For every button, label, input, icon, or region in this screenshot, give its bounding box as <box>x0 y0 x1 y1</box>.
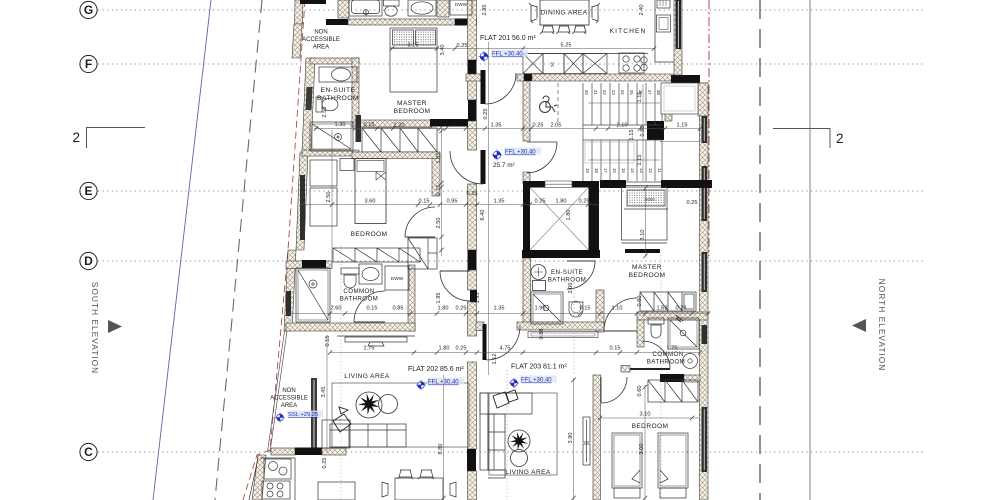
svg-text:MASTER: MASTER <box>397 100 427 107</box>
svg-text:DWW: DWW <box>391 276 404 282</box>
svg-text:3.15: 3.15 <box>408 43 419 49</box>
svg-text:6.80: 6.80 <box>438 444 444 455</box>
svg-text:1.95: 1.95 <box>475 293 481 304</box>
svg-text:1.15: 1.15 <box>637 155 643 166</box>
svg-text:EN-SUITE: EN-SUITE <box>321 87 356 94</box>
svg-text:FFL +30.40: FFL +30.40 <box>521 378 552 384</box>
svg-text:BEDROOM: BEDROOM <box>351 231 388 238</box>
svg-text:0.25: 0.25 <box>535 199 546 205</box>
svg-text:6.40: 6.40 <box>480 210 486 221</box>
svg-text:COMMON: COMMON <box>343 288 374 295</box>
svg-text:AREA: AREA <box>281 403 297 409</box>
svg-text:0.15: 0.15 <box>419 199 430 205</box>
svg-text:2.00: 2.00 <box>568 283 574 294</box>
svg-text:2.40: 2.40 <box>639 5 645 16</box>
svg-text:BATHROOM: BATHROOM <box>548 277 587 284</box>
svg-text:14: 14 <box>630 168 635 173</box>
svg-text:25.7 m²: 25.7 m² <box>493 162 515 169</box>
svg-text:MASTER: MASTER <box>632 264 662 271</box>
svg-text:8000: 8000 <box>645 197 655 202</box>
svg-text:FLAT 203 81.1 m²: FLAT 203 81.1 m² <box>511 364 567 371</box>
svg-text:2.60: 2.60 <box>331 306 342 312</box>
svg-text:1.63: 1.63 <box>657 306 668 312</box>
svg-text:KITCHEN: KITCHEN <box>610 28 647 35</box>
svg-text:SOUTH ELEVATION: SOUTH ELEVATION <box>90 282 100 374</box>
svg-text:1.10: 1.10 <box>612 306 623 312</box>
svg-text:C: C <box>84 445 93 459</box>
svg-text:E: E <box>84 184 92 198</box>
svg-text:18: 18 <box>594 168 599 173</box>
svg-text:G: G <box>84 3 93 17</box>
svg-text:25: 25 <box>629 90 634 95</box>
svg-text:0.25: 0.25 <box>322 458 328 469</box>
svg-text:BEDROOM: BEDROOM <box>632 423 669 430</box>
svg-text:DWW: DWW <box>455 2 468 7</box>
svg-text:2.55: 2.55 <box>322 107 328 118</box>
svg-text:0.25: 0.25 <box>483 109 489 120</box>
svg-text:0.25: 0.25 <box>456 346 467 352</box>
svg-text:0.15: 0.15 <box>325 336 331 347</box>
svg-text:1.15: 1.15 <box>629 130 635 141</box>
svg-text:BATHROOM: BATHROOM <box>340 296 379 303</box>
svg-text:BEDROOM: BEDROOM <box>629 272 666 279</box>
svg-text:DINING AREA: DINING AREA <box>541 10 588 17</box>
svg-text:16: 16 <box>612 168 617 173</box>
svg-text:3.90: 3.90 <box>568 433 574 444</box>
svg-text:24: 24 <box>620 90 625 95</box>
svg-text:0.95: 0.95 <box>447 123 458 129</box>
svg-text:3.10: 3.10 <box>640 230 646 241</box>
svg-text:D: D <box>84 254 93 268</box>
svg-text:NORTH ELEVATION: NORTH ELEVATION <box>877 279 887 372</box>
svg-text:19: 19 <box>585 168 590 173</box>
svg-text:27: 27 <box>647 90 652 95</box>
svg-text:2.20: 2.20 <box>394 123 405 129</box>
svg-text:2.50: 2.50 <box>326 192 332 203</box>
svg-text:1.80: 1.80 <box>556 199 567 205</box>
svg-text:22: 22 <box>602 90 607 95</box>
svg-text:ACCESSIBLE: ACCESSIBLE <box>302 37 340 43</box>
svg-text:1.95: 1.95 <box>436 293 442 304</box>
svg-text:28: 28 <box>656 90 661 95</box>
svg-text:0.15: 0.15 <box>364 122 375 128</box>
svg-text:0.25: 0.25 <box>457 43 468 49</box>
svg-text:F: F <box>85 57 92 71</box>
svg-text:0.85: 0.85 <box>393 306 404 312</box>
svg-text:20: 20 <box>584 90 589 95</box>
svg-text:FFL +30.40: FFL +30.40 <box>428 380 459 386</box>
svg-text:COMMON: COMMON <box>652 351 683 358</box>
svg-text:0.15: 0.15 <box>436 185 442 196</box>
svg-text:SSL +29.25: SSL +29.25 <box>288 412 318 418</box>
svg-text:2.85: 2.85 <box>482 5 488 16</box>
svg-text:FFL +30.40: FFL +30.40 <box>505 150 536 156</box>
svg-text:0.88: 0.88 <box>539 329 545 340</box>
svg-text:BATHROOM: BATHROOM <box>647 359 686 366</box>
svg-text:15: 15 <box>621 168 626 173</box>
svg-text:1.35: 1.35 <box>491 123 502 129</box>
svg-text:2: 2 <box>836 131 844 146</box>
svg-text:1.75: 1.75 <box>667 346 678 352</box>
svg-text:11: 11 <box>657 168 662 173</box>
svg-text:0.15: 0.15 <box>580 306 591 312</box>
svg-text:EN-SUITE: EN-SUITE <box>551 269 583 276</box>
svg-text:3.40: 3.40 <box>440 45 446 56</box>
svg-text:0.15: 0.15 <box>367 306 378 312</box>
svg-text:1.15: 1.15 <box>637 92 643 103</box>
svg-text:AREA: AREA <box>313 45 329 51</box>
svg-text:3.60: 3.60 <box>365 199 376 205</box>
svg-text:12: 12 <box>648 168 653 173</box>
svg-text:0.15: 0.15 <box>610 346 621 352</box>
svg-text:5.25: 5.25 <box>561 43 572 49</box>
svg-text:NON: NON <box>314 30 327 36</box>
svg-text:1.90: 1.90 <box>535 306 546 312</box>
svg-text:1.80: 1.80 <box>438 306 449 312</box>
svg-text:FLAT 202 85.6 m²: FLAT 202 85.6 m² <box>408 366 464 373</box>
svg-text:FFL +30.40: FFL +30.40 <box>492 52 523 58</box>
svg-text:2.05: 2.05 <box>551 123 562 129</box>
svg-text:1.30: 1.30 <box>335 122 346 128</box>
svg-text:1.35: 1.35 <box>494 199 505 205</box>
svg-text:BATHROOM: BATHROOM <box>317 95 359 102</box>
svg-text:2.10: 2.10 <box>617 123 628 129</box>
svg-text:NON: NON <box>282 388 295 394</box>
svg-text:0.95: 0.95 <box>447 199 458 205</box>
svg-text:0.60: 0.60 <box>637 386 643 397</box>
svg-text:2.75: 2.75 <box>364 346 375 352</box>
svg-text:LIVING AREA: LIVING AREA <box>344 373 390 380</box>
svg-text:21: 21 <box>593 90 598 95</box>
svg-text:3.10: 3.10 <box>640 412 651 418</box>
svg-text:0.25: 0.25 <box>456 306 467 312</box>
svg-text:3.45: 3.45 <box>321 387 327 398</box>
svg-text:1.80: 1.80 <box>566 210 572 221</box>
svg-text:0.28: 0.28 <box>676 306 687 312</box>
svg-text:2: 2 <box>72 130 80 145</box>
svg-text:0.25: 0.25 <box>579 199 590 205</box>
svg-text:0.25: 0.25 <box>467 191 478 197</box>
svg-text:1.15: 1.15 <box>677 123 688 129</box>
svg-text:1.12: 1.12 <box>492 354 498 365</box>
svg-text:3.00: 3.00 <box>639 444 645 455</box>
svg-text:0.60: 0.60 <box>637 296 643 307</box>
svg-text:0.25: 0.25 <box>687 200 698 206</box>
svg-text:BEDROOM: BEDROOM <box>394 108 431 115</box>
svg-text:23: 23 <box>611 90 616 95</box>
svg-text:1.80: 1.80 <box>439 346 450 352</box>
svg-text:2.50: 2.50 <box>436 218 442 229</box>
svg-text:0.25: 0.25 <box>533 123 544 129</box>
svg-text:17: 17 <box>603 168 608 173</box>
svg-text:1.35: 1.35 <box>436 153 442 164</box>
svg-text:1.35: 1.35 <box>494 306 505 312</box>
svg-text:4.75: 4.75 <box>500 346 511 352</box>
svg-text:FLAT 201 56.0 m²: FLAT 201 56.0 m² <box>480 35 536 42</box>
svg-text:ACCESSIBLE: ACCESSIBLE <box>270 396 308 402</box>
svg-text:LIVING AREA: LIVING AREA <box>505 469 551 476</box>
